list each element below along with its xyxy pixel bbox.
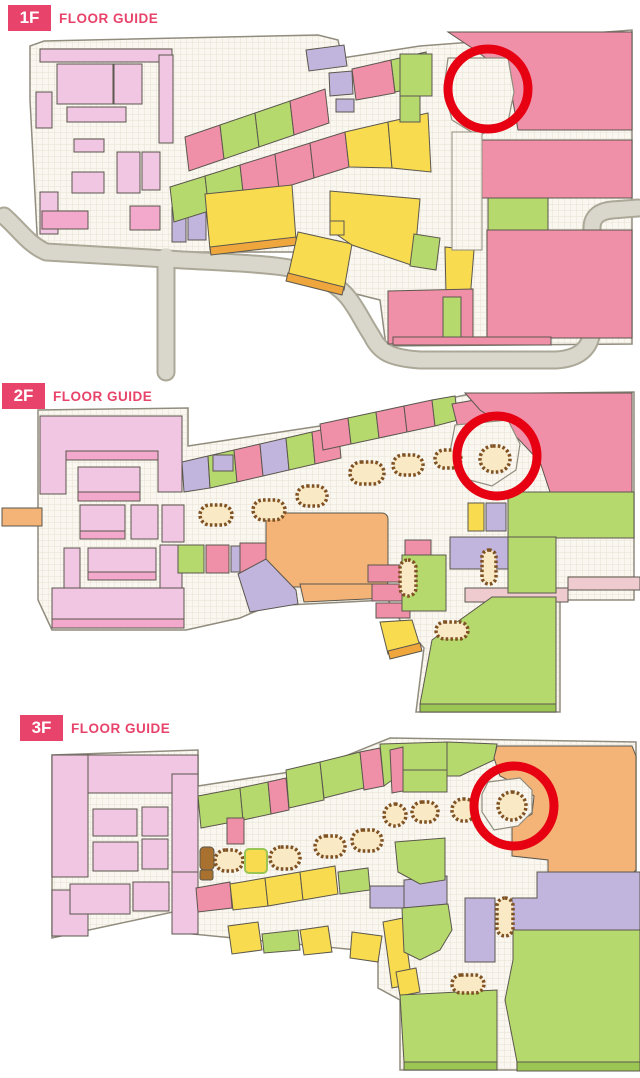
3f-green-region: [240, 782, 271, 820]
3f-play-area: [245, 849, 267, 873]
2f-lpink-region: [162, 505, 184, 542]
3f-lpink-region: [142, 807, 168, 836]
2f-skylight: [297, 486, 327, 506]
2f-pinkMid-region: [88, 572, 156, 580]
1f-purple-region: [336, 99, 354, 112]
1f-lpink-region: [74, 139, 104, 152]
2f-purple-region: [182, 456, 210, 492]
3f-green-region: [338, 868, 370, 894]
2f-skylight: [482, 550, 496, 584]
1f-green-region: [400, 96, 420, 122]
floor-guide-title-2f: FLOOR GUIDE: [53, 389, 152, 404]
floor-guide-title-3f: FLOOR GUIDE: [71, 721, 170, 736]
3f-green-region: [505, 930, 640, 1062]
2f-purple-region: [486, 503, 506, 531]
2f-pinkMid-region: [66, 451, 158, 460]
2f-green-region: [508, 492, 634, 538]
3f-skylight: [352, 830, 382, 851]
1f-pink-region: [393, 337, 551, 345]
3f-skylight: [315, 836, 345, 857]
1f-purple-region: [306, 45, 347, 71]
2f-green-region: [508, 537, 556, 593]
1f-green-region: [443, 297, 461, 343]
2f-lpink-region: [88, 548, 156, 574]
3f-green-region: [286, 762, 324, 808]
floor-header-1f: 1F FLOOR GUIDE: [8, 5, 158, 31]
3f-skylight: [215, 850, 243, 871]
1f-green-region: [488, 198, 548, 231]
2f-purple-region: [450, 537, 508, 569]
3f-greenDark-region: [517, 1062, 640, 1071]
1f-green-region: [410, 234, 440, 270]
3f-skylight: [412, 802, 438, 822]
2f-yellow-region: [468, 503, 484, 531]
2f-pink-region: [206, 545, 229, 573]
1f-pinkMid-region: [42, 211, 88, 229]
3f-kiosk: [200, 870, 213, 880]
2f-pinkMid-region: [52, 619, 184, 628]
2f-pink-region: [368, 565, 402, 582]
3f-pink-region: [390, 747, 403, 793]
2f-skylight: [400, 560, 416, 596]
2f-lpink-region: [131, 505, 158, 539]
3f-lpink-region: [172, 872, 198, 934]
2f-skylight: [253, 500, 285, 520]
2f-lpink-region: [80, 505, 125, 533]
2f-lpink-region: [52, 588, 184, 622]
3f-greenDark-region: [404, 1062, 497, 1070]
floor-label-badge-2f: 2F: [2, 383, 45, 409]
2f-skylight: [350, 462, 384, 484]
1f-lpink-region: [72, 172, 104, 193]
3f-lpink-region: [93, 842, 138, 871]
mall-floor-maps: [0, 0, 640, 1078]
1f-lpink-region: [159, 55, 173, 143]
2f-skylight-circled: [480, 446, 510, 472]
3f-purple-region: [465, 898, 495, 962]
3f-lpink-region: [172, 774, 198, 872]
2f-purple-region: [260, 438, 289, 476]
3f-kiosk: [200, 847, 214, 870]
2f-pink-region: [376, 406, 407, 438]
2f-pink-region: [234, 444, 263, 482]
1f-lpink-region: [57, 64, 113, 104]
3f-skylight: [270, 847, 300, 869]
3f-lpink-region: [133, 882, 169, 911]
2f-lpink-region: [78, 467, 140, 494]
3f-green-region: [262, 930, 300, 953]
1f-plate-region: [452, 132, 482, 250]
1f-pink-region: [487, 230, 632, 338]
2f-pink-region: [404, 400, 435, 432]
2f-pinkMid-region: [80, 531, 125, 539]
2f-greenDark-region: [420, 704, 556, 712]
2f-pink-region: [320, 418, 351, 450]
3f-yellow-region: [228, 922, 262, 954]
3f-pink-region: [360, 748, 384, 790]
floor-header-3f: 3F FLOOR GUIDE: [20, 715, 170, 741]
1f-lpink-region: [114, 64, 142, 104]
floor-guide-title-1f: FLOOR GUIDE: [59, 11, 158, 26]
3f-yellow-region: [396, 968, 420, 996]
floor-guide-page: 1F FLOOR GUIDE 2F FLOOR GUIDE 3F FLOOR G…: [0, 0, 640, 1078]
3f-yellow-region: [300, 926, 332, 955]
2f-orange-region: [2, 508, 42, 526]
3f-yellow-region: [265, 872, 303, 906]
floor-header-2f: 2F FLOOR GUIDE: [2, 383, 152, 409]
3f-skylight: [384, 804, 406, 826]
1f-lpink-region: [40, 49, 172, 62]
floor-label-badge-1f: 1F: [8, 5, 51, 31]
3f-yellow-region: [230, 878, 268, 910]
2f-pinkMid-region: [78, 492, 140, 501]
3f-skylight-circled: [498, 792, 526, 820]
2f-green-region: [348, 412, 379, 444]
3f-lpink-region: [93, 809, 137, 836]
2f-skylight: [200, 505, 232, 525]
3f-yellow-region: [300, 866, 338, 900]
1f-pinkMid-region: [130, 206, 160, 230]
3f-green-region: [400, 990, 497, 1062]
1f-lpink-region: [117, 152, 140, 193]
2f-sky-bridge: [568, 577, 640, 590]
3f-skylight: [452, 975, 484, 993]
3f-pink-region: [227, 818, 244, 844]
2f-green-region: [178, 545, 204, 573]
3f-yellow-region: [350, 932, 382, 962]
1f-purple-region: [329, 71, 353, 96]
3f-green-region: [403, 770, 447, 792]
1f-pink-region: [482, 140, 632, 198]
2f-green-region: [286, 432, 315, 470]
3f-skylight: [497, 898, 513, 936]
3f-lpink-region: [142, 839, 168, 869]
3f-purple-region: [370, 886, 408, 908]
3f-lpink-region: [52, 755, 88, 877]
1f-green-region: [400, 54, 432, 96]
1f-yellow-region: [330, 221, 344, 235]
1f-lpink-region: [36, 92, 52, 128]
2f-skylight: [436, 622, 468, 639]
2f-purple-region: [213, 455, 233, 471]
1f-lpink-region: [67, 107, 126, 122]
floor-label-badge-3f: 3F: [20, 715, 63, 741]
1f-lpink-region: [142, 152, 160, 190]
2f-skylight: [393, 455, 423, 475]
3f-lpink-region: [70, 884, 130, 914]
3f-pink-region: [268, 778, 289, 814]
